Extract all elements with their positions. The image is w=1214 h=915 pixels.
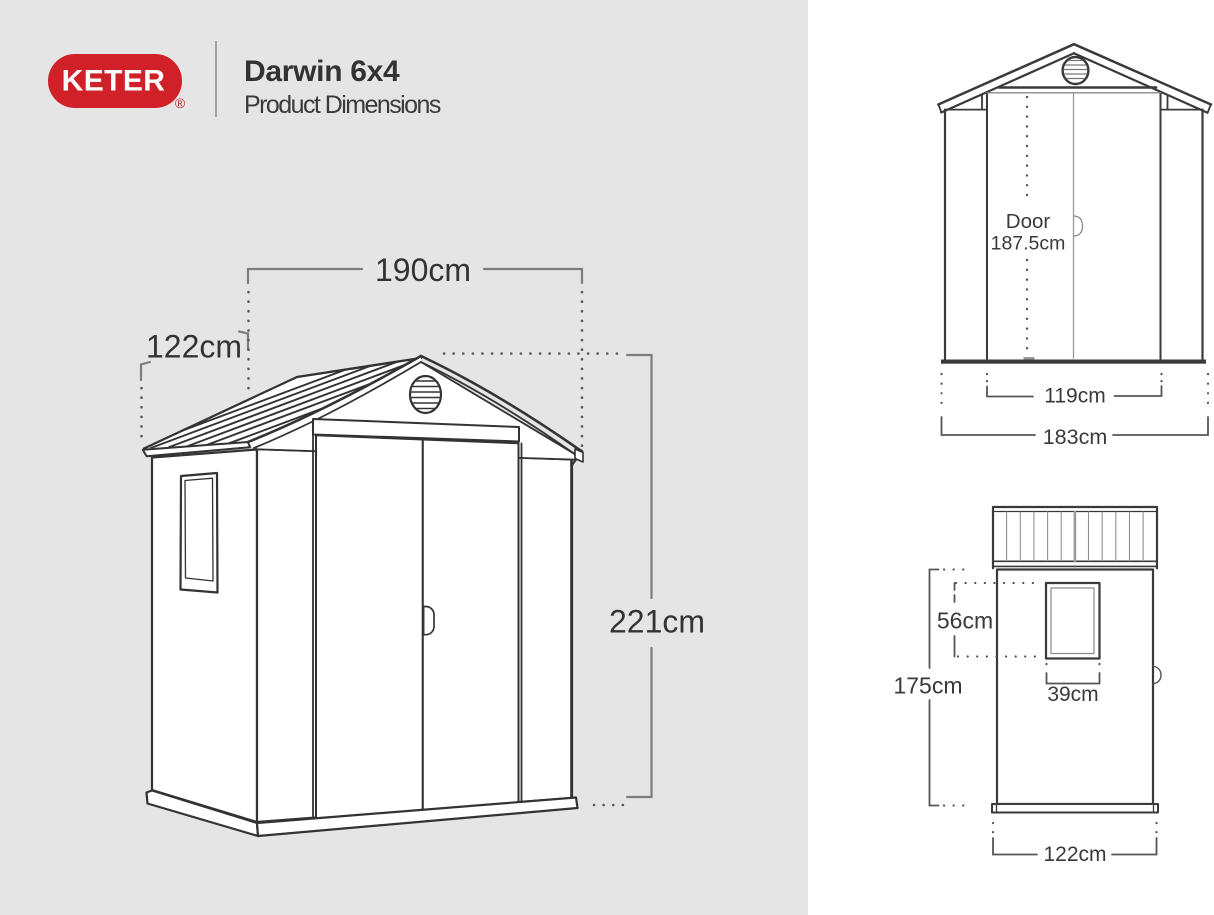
svg-text:Darwin 6x4: Darwin 6x4	[244, 55, 400, 88]
svg-text:183cm: 183cm	[1043, 425, 1108, 449]
svg-text:122cm: 122cm	[146, 329, 242, 365]
svg-text:56cm: 56cm	[937, 608, 993, 634]
svg-text:119cm: 119cm	[1044, 385, 1105, 408]
svg-text:187.5cm: 187.5cm	[991, 233, 1066, 255]
svg-text:Product Dimensions: Product Dimensions	[244, 91, 441, 119]
svg-text:KETER: KETER	[62, 65, 166, 98]
svg-text:122cm: 122cm	[1043, 843, 1106, 866]
svg-text:®: ®	[175, 95, 186, 111]
svg-text:39cm: 39cm	[1047, 683, 1098, 706]
svg-text:Door: Door	[1006, 210, 1051, 233]
svg-text:175cm: 175cm	[893, 673, 962, 699]
svg-text:190cm: 190cm	[375, 252, 471, 288]
svg-text:221cm: 221cm	[609, 604, 705, 640]
